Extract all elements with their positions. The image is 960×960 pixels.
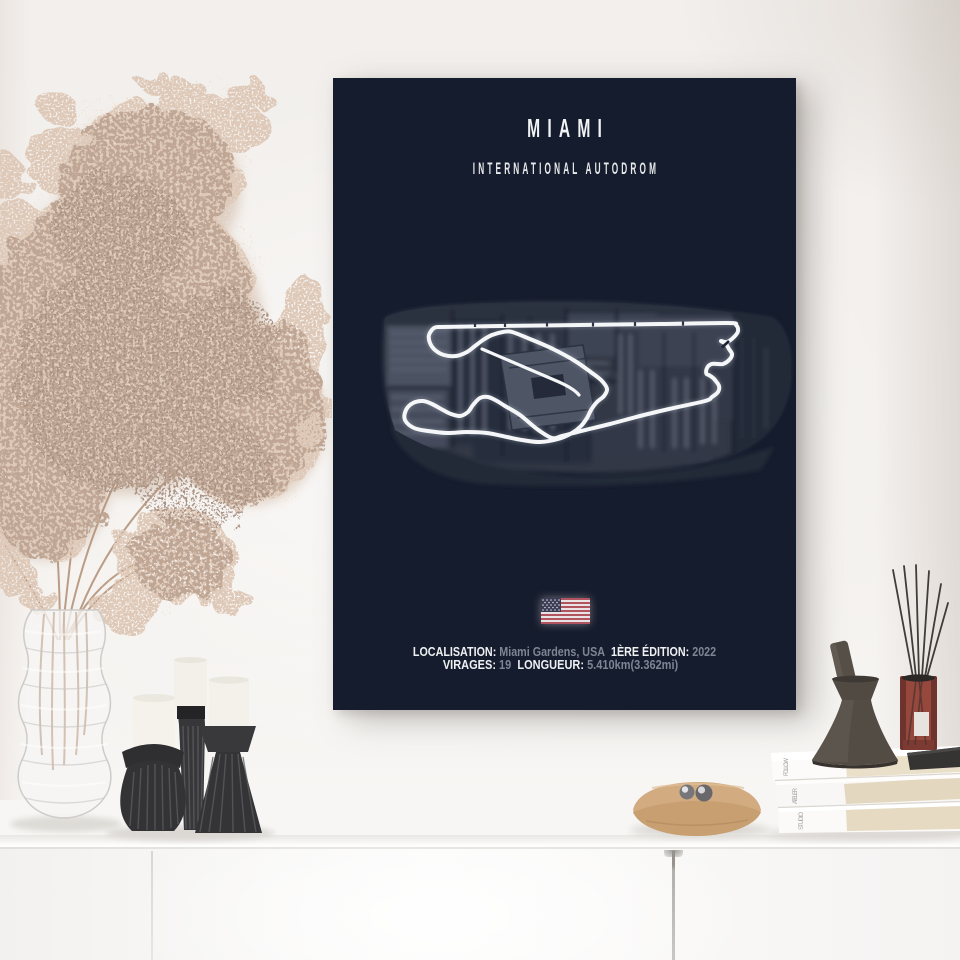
svg-text:ATELIER: ATELIER (793, 787, 799, 804)
svg-text:FOLLOW: FOLLOW (784, 758, 790, 776)
svg-text:STUDIO: STUDIO (799, 812, 805, 830)
